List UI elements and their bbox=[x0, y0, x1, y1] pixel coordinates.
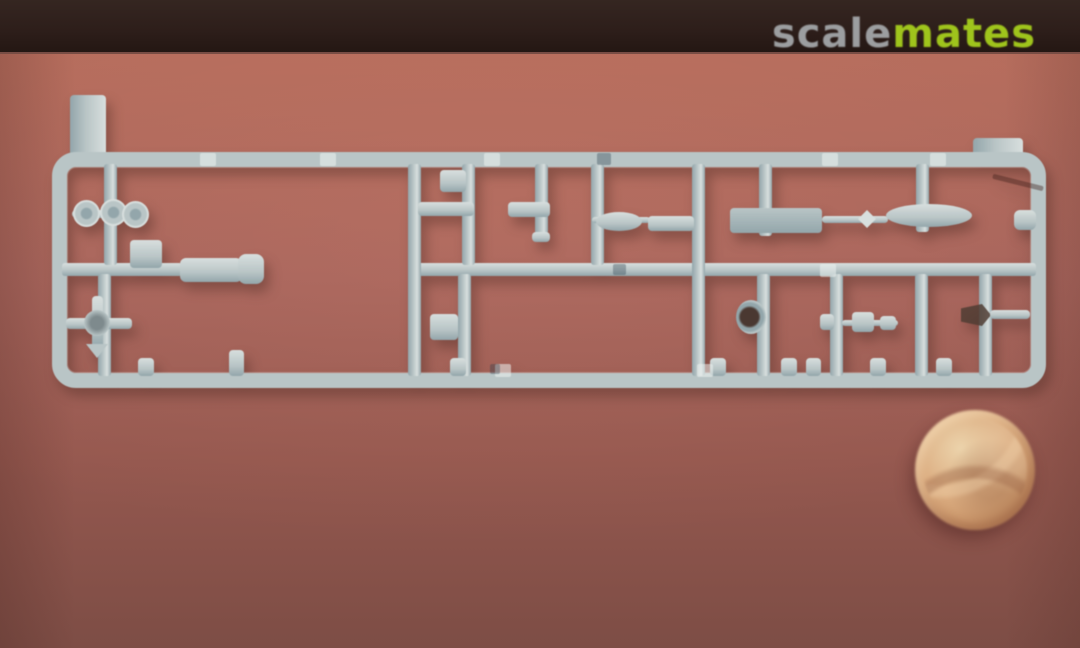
sprue-gate-foot bbox=[781, 358, 797, 376]
sprue-gate-mark bbox=[484, 153, 500, 166]
sprue-part-stub bbox=[990, 310, 1030, 319]
sprue-part-pin bbox=[532, 232, 550, 242]
sprue-dark-fleck bbox=[613, 264, 626, 275]
sprue-part-road-wheel bbox=[73, 200, 100, 227]
coin-embossing bbox=[923, 418, 1027, 522]
sprue-gate-foot bbox=[450, 358, 466, 376]
scalemates-watermark: scalemates bbox=[772, 14, 1036, 54]
sprue-dark-fleck bbox=[597, 153, 611, 165]
sprue-gate-mark bbox=[822, 153, 838, 166]
sprue-gate-foot bbox=[870, 358, 886, 376]
sprue-part-bar bbox=[648, 216, 694, 231]
sprue-gate-foot bbox=[936, 358, 952, 376]
sprue-part-hull-plate bbox=[730, 208, 822, 233]
sprue-part-knob bbox=[1014, 210, 1036, 230]
sprue-part-fuel-tank bbox=[886, 204, 972, 227]
sprue-part-ring bbox=[736, 300, 766, 334]
sprue-mid-rail-right bbox=[408, 263, 1036, 276]
photo: scalemates bbox=[0, 0, 1080, 648]
sprue-part-small-bit bbox=[880, 316, 896, 330]
sprue-part-plate bbox=[508, 202, 550, 217]
sprue-gate-foot bbox=[138, 358, 154, 376]
sprue-gate-mark bbox=[200, 153, 216, 166]
sprue-dark-fleck bbox=[490, 364, 500, 374]
sprue-rib bbox=[692, 164, 705, 376]
sprue-part-rod bbox=[822, 216, 888, 223]
sprue-rib bbox=[408, 164, 421, 376]
sprue-part-bracket bbox=[430, 314, 458, 340]
sprue-part-bracket bbox=[440, 170, 466, 192]
sprue-gate-mark bbox=[930, 153, 946, 166]
sprue-gate-foot bbox=[806, 358, 821, 376]
model-kit-sprue bbox=[52, 92, 1046, 392]
sprue-part-barrel-collar bbox=[238, 254, 264, 284]
sprue-part-ellipse bbox=[596, 212, 642, 231]
coin bbox=[915, 410, 1035, 530]
sprue-part-gun-barrel bbox=[180, 258, 242, 282]
watermark-scale-text: scale bbox=[772, 11, 892, 57]
sprue-gate-mark bbox=[320, 153, 336, 166]
sprue-part-small-bit bbox=[852, 312, 874, 332]
sprue-gate-mark bbox=[820, 264, 836, 277]
sprue-part-block bbox=[130, 240, 162, 268]
watermark-mates-text: mates bbox=[892, 11, 1036, 57]
sprue-gate-mark bbox=[697, 364, 713, 377]
sprue-part-axle-hub bbox=[84, 310, 110, 336]
sprue-part-plate bbox=[418, 202, 474, 216]
sprue-rib bbox=[535, 164, 548, 234]
sprue-part-road-wheel bbox=[122, 201, 149, 228]
sprue-part-small-bit bbox=[820, 314, 834, 330]
sprue-gate-foot bbox=[229, 350, 244, 376]
sprue-rib bbox=[915, 274, 928, 376]
sprue-mid-rail-left bbox=[62, 263, 182, 276]
